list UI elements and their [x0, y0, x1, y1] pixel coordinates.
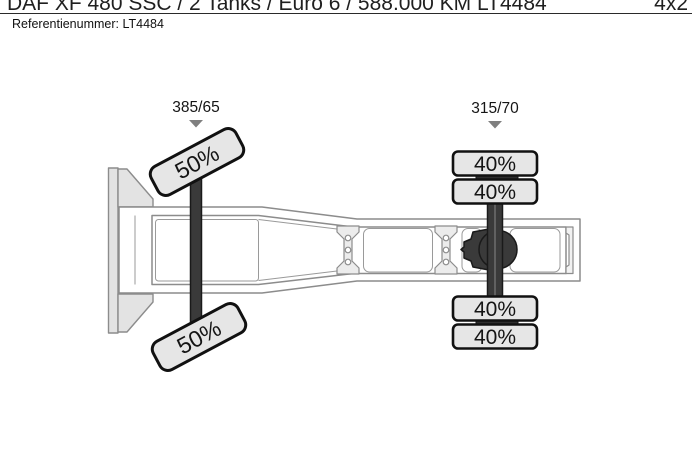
rear-axle-pointer-icon: [488, 121, 502, 129]
chassis-diagram: 385/65 315/70: [0, 0, 692, 460]
rear-right-inner-tire: 40%: [453, 297, 537, 322]
rear-left-inner-tire: 40%: [453, 180, 537, 205]
tire-condition-label: 40%: [474, 326, 516, 349]
rear-tire-size-label: 315/70: [471, 100, 519, 117]
front-tire-size-label: 385/65: [172, 99, 219, 116]
tire-condition-label: 40%: [474, 181, 516, 204]
front-axle: [191, 158, 202, 342]
rear-left-outer-tire: 40%: [453, 152, 537, 177]
rear-right-outer-tire: 40%: [453, 325, 537, 350]
front-axle-pointer-icon: [189, 120, 203, 128]
tire-condition-label: 40%: [474, 298, 516, 321]
tire-condition-label: 40%: [474, 153, 516, 176]
